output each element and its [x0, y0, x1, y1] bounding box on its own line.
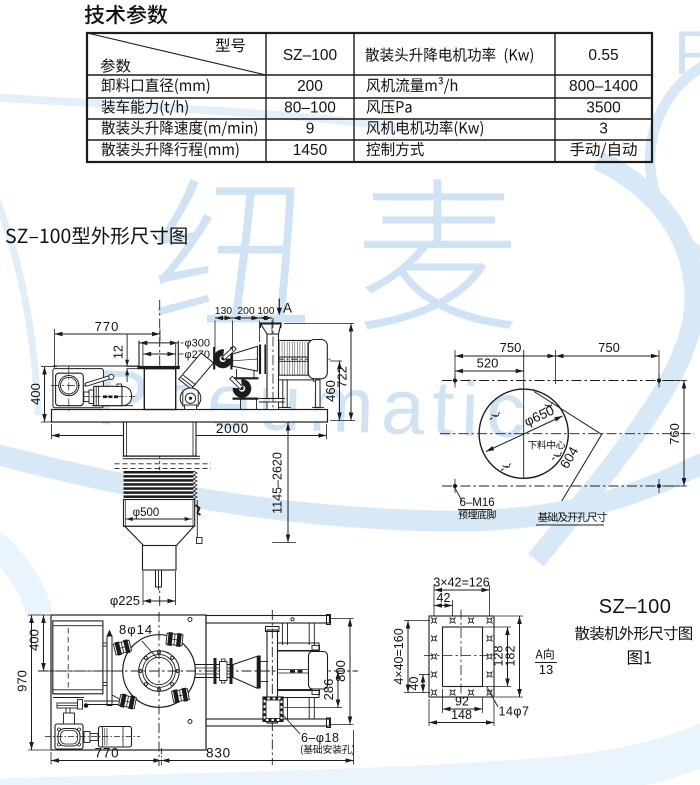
svg-text:4×40=160: 4×40=160	[392, 628, 406, 684]
svg-text:SZ–100: SZ–100	[283, 47, 338, 64]
svg-text:200: 200	[237, 306, 255, 317]
svg-text:P: P	[674, 19, 700, 88]
svg-text:3×42=126: 3×42=126	[433, 576, 489, 590]
svg-text:42: 42	[437, 591, 451, 605]
svg-text:3500: 3500	[586, 100, 621, 117]
svg-text:286: 286	[321, 679, 336, 701]
svg-text:3: 3	[599, 121, 608, 138]
svg-text:1145–2620: 1145–2620	[271, 452, 285, 514]
svg-text:φ500: φ500	[133, 507, 160, 519]
svg-text:770: 770	[95, 319, 120, 334]
svg-text:800–1400: 800–1400	[569, 78, 638, 95]
svg-text:SZ–100: SZ–100	[599, 596, 671, 618]
svg-text:100: 100	[257, 306, 275, 317]
svg-text:722: 722	[335, 366, 350, 388]
svg-text:6–M16: 6–M16	[460, 497, 495, 509]
svg-text:14φ7: 14φ7	[499, 705, 530, 719]
svg-text:400: 400	[27, 629, 42, 651]
svg-text:770: 770	[95, 746, 120, 761]
svg-text:2000: 2000	[216, 421, 249, 436]
svg-text:520: 520	[477, 356, 499, 371]
svg-text:40: 40	[407, 677, 421, 691]
svg-text:200: 200	[297, 78, 323, 95]
svg-text:1450: 1450	[293, 142, 328, 159]
svg-text:750: 750	[500, 340, 522, 355]
svg-text:6–φ18: 6–φ18	[301, 731, 339, 745]
svg-text:970: 970	[15, 670, 30, 692]
svg-text:13: 13	[539, 662, 553, 677]
svg-text:604: 604	[557, 444, 582, 471]
svg-text:400: 400	[28, 383, 43, 405]
svg-text:148: 148	[451, 708, 472, 722]
svg-text:φ300: φ300	[185, 338, 211, 350]
svg-text:80–100: 80–100	[284, 100, 336, 117]
svg-text:760: 760	[667, 423, 682, 445]
svg-text:8φ14: 8φ14	[119, 622, 153, 637]
svg-text:9: 9	[306, 121, 315, 138]
svg-text:φ225: φ225	[110, 593, 140, 608]
svg-text:12: 12	[112, 345, 126, 359]
svg-text:130: 130	[215, 306, 233, 317]
svg-text:0.55: 0.55	[588, 47, 618, 64]
svg-text:A: A	[283, 301, 292, 316]
svg-text:830: 830	[206, 746, 231, 761]
svg-text:182: 182	[504, 646, 518, 667]
svg-text:800: 800	[333, 660, 348, 682]
svg-text:750: 750	[598, 340, 620, 355]
svg-text:92: 92	[455, 695, 469, 709]
